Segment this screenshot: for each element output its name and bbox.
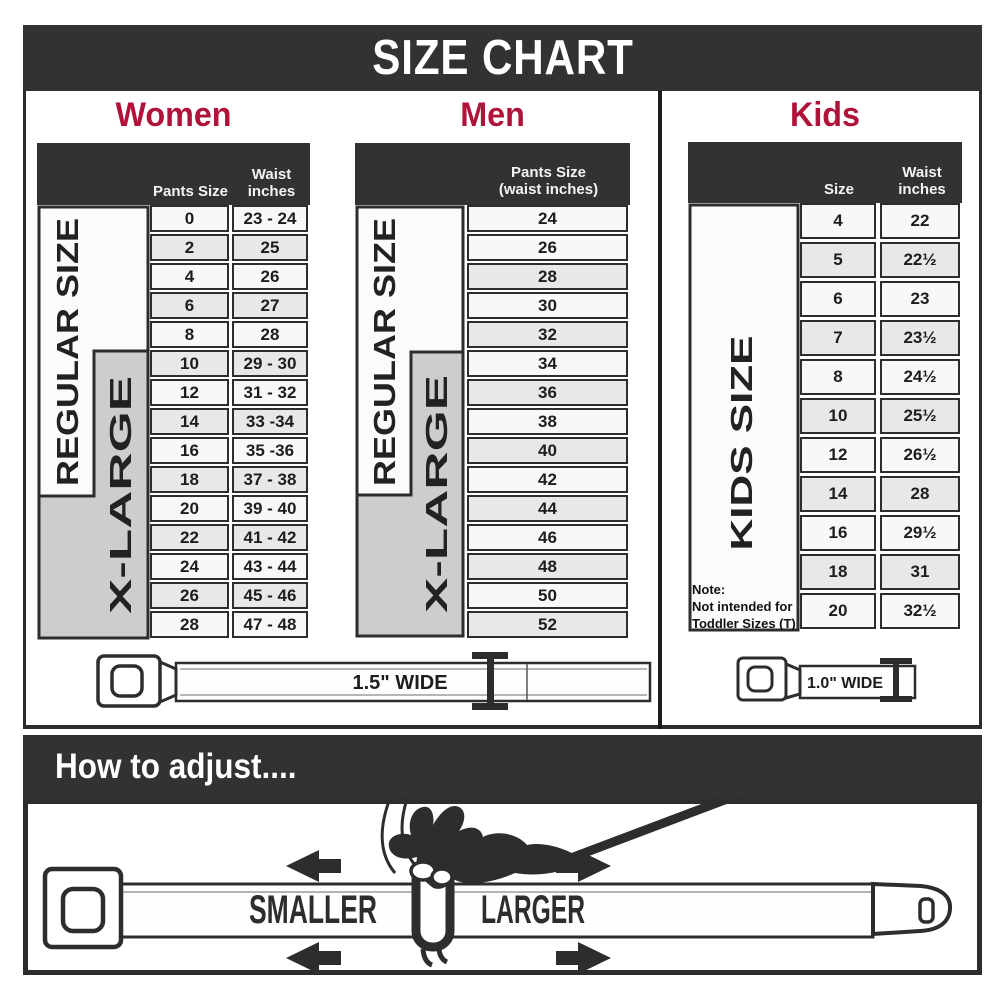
table-row: 2 25	[150, 234, 308, 261]
adult-belt-diagram: 1.5" WIDE	[90, 650, 660, 712]
waist-cell: 22½	[880, 242, 960, 278]
pants-size-cell: 52	[467, 611, 628, 638]
arrow-right-icon	[556, 942, 611, 974]
waist-cell: 25½	[880, 398, 960, 434]
kids-size-label-zone: KIDS SIZE	[688, 203, 800, 632]
panel-divider	[658, 91, 662, 729]
pants-size-cell: 10	[150, 350, 229, 377]
kids-size-cell: 18	[800, 554, 876, 590]
kids-size-cell: 16	[800, 515, 876, 551]
kids-size-cell: 20	[800, 593, 876, 629]
men-pants-size-header: Pants Size (waist inches)	[467, 164, 630, 199]
kids-size-cell: 10	[800, 398, 876, 434]
arrow-left-icon	[286, 850, 341, 882]
waist-cell: 23	[880, 281, 960, 317]
pants-size-cell: 12	[150, 379, 229, 406]
men-size-label-zone: REGULAR SIZE X-LARGE	[355, 205, 465, 638]
waist-cell: 26	[232, 263, 308, 290]
waist-cell: 31	[880, 554, 960, 590]
pants-size-cell: 50	[467, 582, 628, 609]
table-row: 16 29½	[800, 515, 960, 551]
table-row: 18 37 - 38	[150, 466, 308, 493]
kids-waist-header: Waist inches	[882, 164, 962, 199]
waist-cell: 39 - 40	[232, 495, 308, 522]
pants-size-cell: 48	[467, 553, 628, 580]
table-row: 50	[467, 582, 628, 609]
waist-cell: 28	[880, 476, 960, 512]
table-row: 10 29 - 30	[150, 350, 308, 377]
table-row: 5 22½	[800, 242, 960, 278]
table-row: 6 27	[150, 292, 308, 319]
table-row: 14 33 -34	[150, 408, 308, 435]
table-row: 0 23 - 24	[150, 205, 308, 232]
table-row: 14 28	[800, 476, 960, 512]
adult-belt-width-label: 1.5" WIDE	[352, 672, 447, 694]
kids-table-rows: 4 22 5 22½ 6 23 7 23½ 8 24½ 10 25½ 12 26…	[800, 203, 960, 629]
kids-section-title: Kids	[695, 96, 955, 135]
waist-cell: 33 -34	[232, 408, 308, 435]
women-xlarge-label: X-LARGE	[103, 376, 138, 614]
pulled-belt-end	[563, 799, 775, 861]
waist-cell: 29 - 30	[232, 350, 308, 377]
women-waist-header: Waist inches	[233, 166, 310, 201]
table-row: 4 22	[800, 203, 960, 239]
pants-size-cell: 28	[150, 611, 229, 638]
table-row: 10 25½	[800, 398, 960, 434]
pants-size-cell: 16	[150, 437, 229, 464]
buckle-latch	[786, 664, 800, 698]
pants-size-cell: 40	[467, 437, 628, 464]
kids-size-cell: 12	[800, 437, 876, 473]
pants-size-cell: 6	[150, 292, 229, 319]
kids-table-header: Size Waist inches	[688, 142, 962, 203]
pants-size-cell: 26	[150, 582, 229, 609]
pants-size-cell: 0	[150, 205, 229, 232]
waist-cell: 31 - 32	[232, 379, 308, 406]
pants-size-cell: 32	[467, 321, 628, 348]
waist-cell: 23½	[880, 320, 960, 356]
table-row: 7 23½	[800, 320, 960, 356]
how-to-adjust-title: How to adjust....	[55, 747, 296, 787]
pants-size-cell: 18	[150, 466, 229, 493]
women-table-header: Pants Size Waist inches	[37, 143, 310, 205]
women-regular-size-label: REGULAR SIZE	[50, 218, 85, 486]
pants-size-cell: 26	[467, 234, 628, 261]
table-row: 8 24½	[800, 359, 960, 395]
pants-size-cell: 38	[467, 408, 628, 435]
page-title: SIZE CHART	[372, 30, 633, 86]
table-row: 32	[467, 321, 628, 348]
men-section-title: Men	[362, 96, 623, 135]
pants-size-cell: 2	[150, 234, 229, 261]
pants-size-cell: 4	[150, 263, 229, 290]
pants-size-cell: 46	[467, 524, 628, 551]
table-row: 48	[467, 553, 628, 580]
smaller-label: SMALLER	[249, 888, 377, 932]
table-row: 16 35 -36	[150, 437, 308, 464]
waist-cell: 24½	[880, 359, 960, 395]
kids-note: Note: Not intended for Toddler Sizes (T)	[692, 582, 798, 633]
size-chart-page: SIZE CHART Women Men Kids Pants Size Wai…	[0, 0, 1000, 1000]
waist-cell: 27	[232, 292, 308, 319]
table-row: 42	[467, 466, 628, 493]
adjust-illustration: SMALLER LARGER	[23, 799, 982, 975]
table-row: 34	[467, 350, 628, 377]
buckle-button	[63, 889, 103, 931]
waist-cell: 32½	[880, 593, 960, 629]
waist-cell: 43 - 44	[232, 553, 308, 580]
table-row: 12 26½	[800, 437, 960, 473]
women-table-rows: 0 23 - 24 2 25 4 26 6 27 8 28 10 29 - 30…	[150, 205, 308, 638]
kids-size-cell: 14	[800, 476, 876, 512]
waist-cell: 22	[880, 203, 960, 239]
table-row: 24 43 - 44	[150, 553, 308, 580]
belt-end-tip	[873, 884, 950, 934]
buckle-latch	[160, 662, 176, 702]
larger-label: LARGER	[481, 888, 585, 932]
kids-size-cell: 5	[800, 242, 876, 278]
waist-cell: 26½	[880, 437, 960, 473]
table-row: 22 41 - 42	[150, 524, 308, 551]
table-row: 18 31	[800, 554, 960, 590]
table-row: 24	[467, 205, 628, 232]
pants-size-cell: 34	[467, 350, 628, 377]
pants-size-cell: 42	[467, 466, 628, 493]
belt-tip-slot	[920, 899, 933, 922]
kids-size-cell: 8	[800, 359, 876, 395]
table-row: 52	[467, 611, 628, 638]
kids-belt-diagram: 1.0" WIDE	[730, 650, 970, 708]
waist-cell: 23 - 24	[232, 205, 308, 232]
pants-size-cell: 20	[150, 495, 229, 522]
waist-cell: 28	[232, 321, 308, 348]
table-row: 26	[467, 234, 628, 261]
table-row: 44	[467, 495, 628, 522]
table-row: 4 26	[150, 263, 308, 290]
kids-size-label: KIDS SIZE	[724, 336, 759, 551]
waist-cell: 35 -36	[232, 437, 308, 464]
women-size-label-zone: REGULAR SIZE X-LARGE	[37, 205, 150, 640]
waist-cell: 29½	[880, 515, 960, 551]
women-pants-size-header: Pants Size	[150, 183, 231, 200]
pants-size-cell: 44	[467, 495, 628, 522]
table-row: 28	[467, 263, 628, 290]
table-row: 40	[467, 437, 628, 464]
women-section-title: Women	[44, 96, 303, 135]
pants-size-cell: 30	[467, 292, 628, 319]
table-row: 26 45 - 46	[150, 582, 308, 609]
table-row: 46	[467, 524, 628, 551]
table-row: 28 47 - 48	[150, 611, 308, 638]
arrow-left-icon	[286, 942, 341, 974]
pants-size-cell: 24	[467, 205, 628, 232]
men-xlarge-label: X-LARGE	[419, 375, 454, 613]
waist-cell: 41 - 42	[232, 524, 308, 551]
thumb-tip	[432, 869, 452, 885]
kids-size-cell: 6	[800, 281, 876, 317]
title-band: SIZE CHART	[23, 25, 982, 91]
pants-size-cell: 22	[150, 524, 229, 551]
buckle-button	[112, 666, 142, 696]
men-table-header: Pants Size (waist inches)	[355, 143, 630, 205]
waist-cell: 47 - 48	[232, 611, 308, 638]
kids-size-cell: 7	[800, 320, 876, 356]
table-row: 6 23	[800, 281, 960, 317]
table-row: 20 32½	[800, 593, 960, 629]
table-row: 12 31 - 32	[150, 379, 308, 406]
kids-size-header: Size	[800, 181, 878, 198]
pants-size-cell: 24	[150, 553, 229, 580]
pants-size-cell: 8	[150, 321, 229, 348]
table-row: 36	[467, 379, 628, 406]
men-table-rows: 24 26 28 30 32 34 36 38 40 42 44 46 48 5…	[467, 205, 628, 638]
pants-size-cell: 28	[467, 263, 628, 290]
table-row: 20 39 - 40	[150, 495, 308, 522]
table-row: 8 28	[150, 321, 308, 348]
table-row: 30	[467, 292, 628, 319]
how-to-adjust-band: How to adjust....	[23, 735, 982, 799]
buckle-button	[748, 667, 772, 691]
waist-cell: 37 - 38	[232, 466, 308, 493]
kids-size-cell: 4	[800, 203, 876, 239]
waist-cell: 25	[232, 234, 308, 261]
pants-size-cell: 14	[150, 408, 229, 435]
kids-belt-width-label: 1.0" WIDE	[807, 675, 883, 692]
pants-size-cell: 36	[467, 379, 628, 406]
men-regular-size-label: REGULAR SIZE	[367, 218, 402, 486]
table-row: 38	[467, 408, 628, 435]
waist-cell: 45 - 46	[232, 582, 308, 609]
